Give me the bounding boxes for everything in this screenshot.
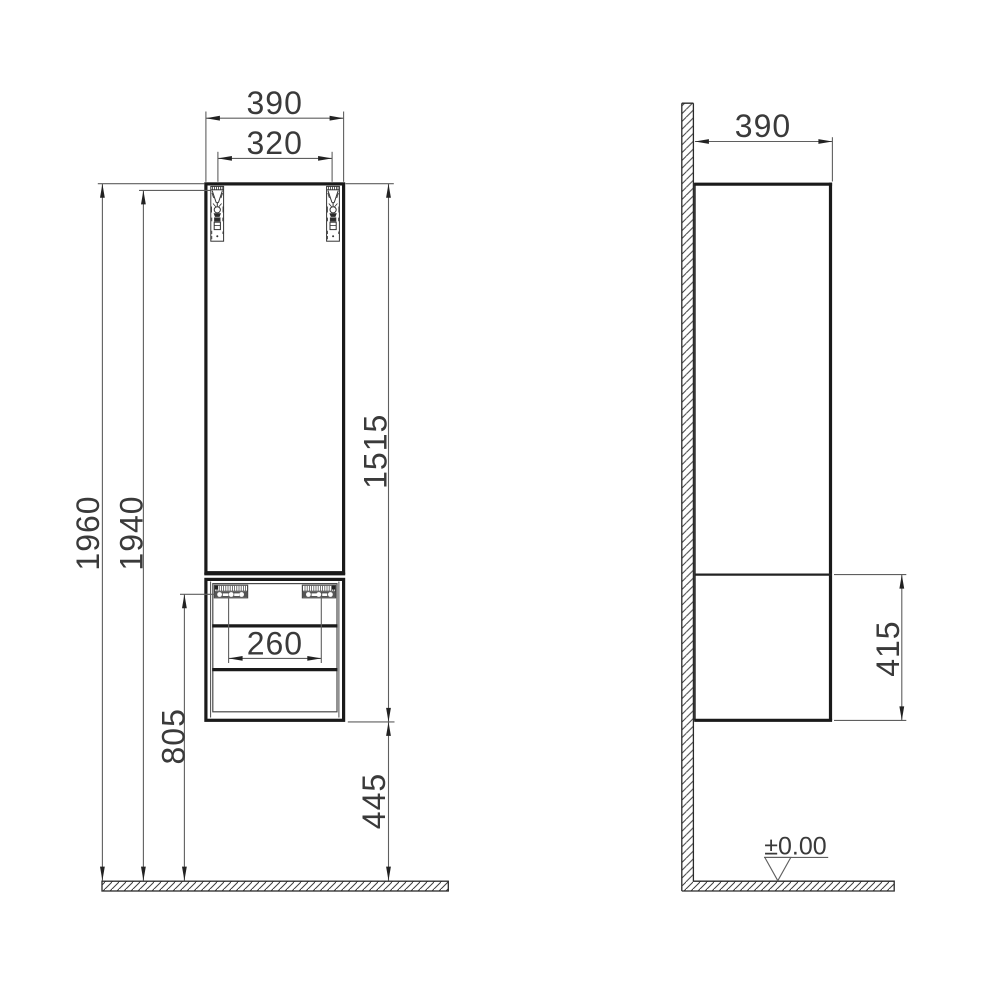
svg-text:415: 415 [870, 620, 906, 676]
svg-text:445: 445 [356, 773, 392, 829]
svg-text:1940: 1940 [113, 495, 149, 570]
svg-text:320: 320 [247, 125, 303, 161]
svg-text:390: 390 [735, 108, 791, 144]
svg-text:390: 390 [247, 85, 303, 121]
svg-text:260: 260 [247, 625, 303, 661]
svg-text:1515: 1515 [358, 414, 394, 489]
svg-text:±0.00: ±0.00 [764, 833, 826, 861]
svg-text:805: 805 [156, 708, 192, 764]
svg-text:1960: 1960 [70, 495, 106, 570]
